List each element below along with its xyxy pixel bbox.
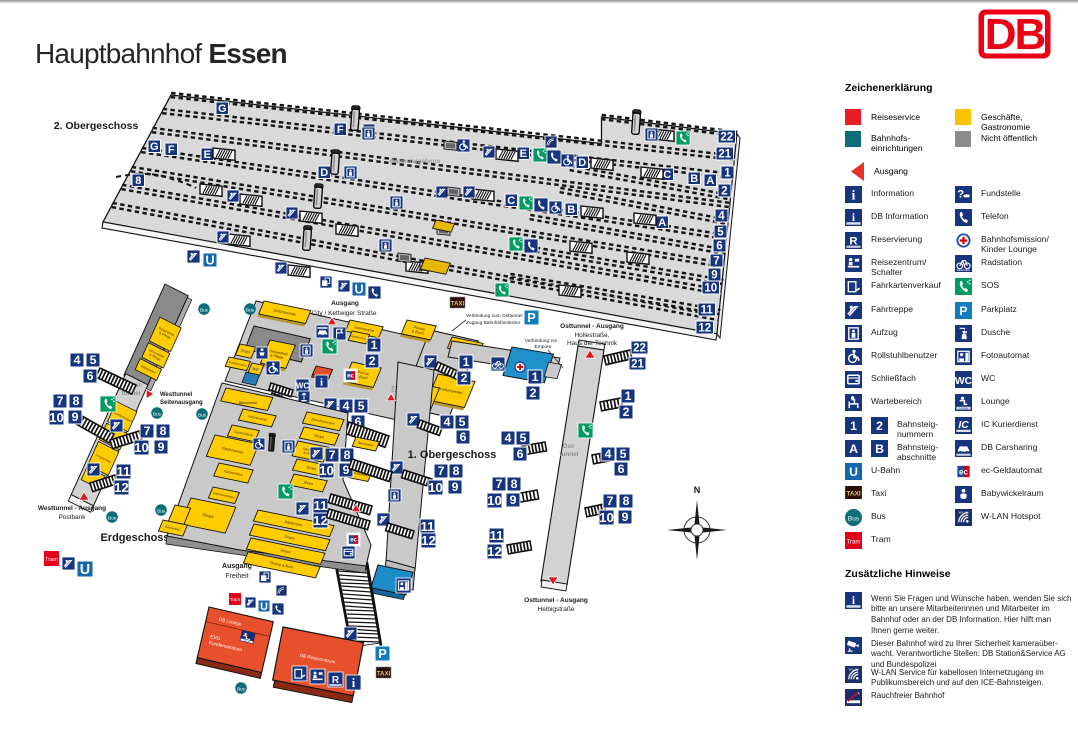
svg-text:8: 8 bbox=[453, 464, 460, 478]
svg-text:2: 2 bbox=[369, 354, 376, 368]
svg-text:7: 7 bbox=[607, 494, 614, 508]
svg-text:Hollestraße,: Hollestraße, bbox=[574, 332, 609, 339]
svg-text:1. Obergeschoss: 1. Obergeschoss bbox=[408, 449, 497, 461]
svg-text:9: 9 bbox=[343, 463, 350, 477]
svg-text:Postbank: Postbank bbox=[58, 514, 86, 521]
svg-text:C: C bbox=[507, 195, 515, 207]
svg-text:7: 7 bbox=[438, 464, 445, 478]
svg-text:1: 1 bbox=[371, 338, 378, 352]
svg-text:2: 2 bbox=[623, 405, 630, 419]
svg-text:5: 5 bbox=[717, 226, 724, 238]
svg-text:C: C bbox=[663, 169, 671, 181]
svg-text:B: B bbox=[690, 173, 698, 185]
svg-text:9: 9 bbox=[452, 480, 459, 494]
svg-text:Radstation: Radstation bbox=[492, 368, 504, 371]
svg-text:F: F bbox=[168, 144, 175, 156]
svg-text:Osttunnel - Ausgang: Osttunnel - Ausgang bbox=[524, 597, 588, 604]
svg-text:12: 12 bbox=[421, 533, 436, 548]
svg-text:Bus: Bus bbox=[157, 509, 166, 514]
svg-text:7: 7 bbox=[496, 477, 503, 491]
svg-text:6: 6 bbox=[517, 447, 524, 461]
svg-text:i: i bbox=[320, 376, 323, 388]
svg-text:U: U bbox=[80, 562, 90, 578]
svg-text:Verbindung zum Osttunnel: Verbindung zum Osttunnel bbox=[466, 313, 523, 319]
svg-text:6: 6 bbox=[460, 430, 467, 444]
svg-text:G: G bbox=[218, 103, 227, 115]
svg-text:5: 5 bbox=[620, 447, 627, 461]
svg-text:9: 9 bbox=[622, 510, 629, 524]
svg-text:12: 12 bbox=[487, 544, 502, 559]
svg-text:10: 10 bbox=[599, 510, 614, 525]
svg-text:Osttunnel - Ausgang: Osttunnel - Ausgang bbox=[560, 323, 624, 330]
svg-text:5: 5 bbox=[459, 415, 466, 429]
svg-text:11: 11 bbox=[421, 519, 435, 534]
svg-text:Bahnsteigebene: Bahnsteigebene bbox=[390, 158, 441, 165]
svg-text:Tram: Tram bbox=[45, 557, 58, 563]
svg-text:4: 4 bbox=[444, 415, 451, 429]
svg-text:7: 7 bbox=[329, 448, 336, 462]
svg-text:7: 7 bbox=[57, 394, 64, 408]
svg-text:21: 21 bbox=[718, 148, 731, 160]
svg-text:Seitenausgang: Seitenausgang bbox=[160, 400, 203, 406]
svg-text:Bus: Bus bbox=[237, 687, 246, 692]
svg-text:2. Obergeschoss: 2. Obergeschoss bbox=[54, 120, 139, 132]
svg-text:7: 7 bbox=[144, 424, 151, 438]
svg-text:P: P bbox=[378, 646, 387, 661]
svg-text:8: 8 bbox=[135, 175, 141, 187]
svg-text:Tram: Tram bbox=[230, 597, 241, 602]
svg-text:i: i bbox=[352, 676, 356, 690]
svg-text:Empore: Empore bbox=[535, 344, 552, 350]
svg-text:ec: ec bbox=[347, 373, 354, 380]
svg-text:Bus: Bus bbox=[246, 308, 255, 313]
svg-text:1: 1 bbox=[532, 370, 539, 384]
svg-text:Bus: Bus bbox=[108, 516, 117, 521]
svg-text:12: 12 bbox=[313, 513, 328, 528]
svg-text:10: 10 bbox=[49, 410, 64, 425]
svg-text:9: 9 bbox=[510, 493, 517, 507]
svg-text:11: 11 bbox=[490, 528, 504, 543]
svg-text:10: 10 bbox=[487, 493, 502, 508]
svg-text:8: 8 bbox=[344, 448, 351, 462]
svg-text:8: 8 bbox=[511, 477, 518, 491]
svg-text:8: 8 bbox=[160, 424, 167, 438]
svg-text:Freiheit: Freiheit bbox=[225, 573, 248, 580]
svg-text:P: P bbox=[527, 310, 536, 325]
svg-text:Westtunnel: Westtunnel bbox=[160, 392, 193, 398]
svg-text:Bus: Bus bbox=[153, 412, 162, 417]
svg-text:5: 5 bbox=[520, 431, 527, 445]
svg-text:E: E bbox=[520, 148, 527, 160]
svg-text:D: D bbox=[320, 167, 328, 179]
svg-text:B: B bbox=[567, 204, 575, 216]
svg-text:11: 11 bbox=[117, 464, 131, 479]
svg-text:4: 4 bbox=[343, 399, 350, 413]
svg-text:N: N bbox=[694, 485, 701, 495]
svg-text:1: 1 bbox=[625, 389, 632, 403]
svg-text:E: E bbox=[204, 149, 211, 161]
svg-text:Helbigstraße: Helbigstraße bbox=[538, 606, 575, 613]
svg-text:U: U bbox=[205, 253, 214, 267]
svg-text:TAXI: TAXI bbox=[451, 301, 465, 307]
svg-text:WC: WC bbox=[296, 382, 309, 391]
svg-text:1: 1 bbox=[463, 355, 470, 369]
svg-text:ec: ec bbox=[350, 537, 357, 544]
svg-text:10: 10 bbox=[319, 463, 334, 478]
svg-text:21: 21 bbox=[631, 358, 644, 370]
svg-text:Westtunnel - Ausgang: Westtunnel - Ausgang bbox=[38, 505, 106, 512]
svg-text:9: 9 bbox=[158, 440, 165, 454]
svg-text:D: D bbox=[578, 157, 586, 169]
svg-text:22: 22 bbox=[720, 131, 733, 143]
svg-text:4: 4 bbox=[605, 447, 612, 461]
svg-text:8: 8 bbox=[623, 494, 630, 508]
svg-text:5: 5 bbox=[90, 353, 97, 367]
svg-text:tunnel: tunnel bbox=[560, 451, 579, 458]
svg-text:A: A bbox=[706, 175, 714, 187]
svg-text:TAXI: TAXI bbox=[377, 671, 391, 677]
svg-text:9: 9 bbox=[711, 269, 717, 281]
svg-text:Ost-: Ost- bbox=[563, 443, 576, 450]
svg-text:2: 2 bbox=[461, 371, 468, 385]
svg-text:4: 4 bbox=[74, 353, 81, 367]
svg-text:4: 4 bbox=[718, 210, 725, 222]
svg-text:G: G bbox=[150, 141, 159, 153]
svg-text:2: 2 bbox=[530, 386, 537, 400]
svg-text:6: 6 bbox=[618, 462, 625, 476]
svg-text:12: 12 bbox=[698, 322, 711, 334]
svg-text:10: 10 bbox=[704, 282, 717, 294]
svg-text:5: 5 bbox=[358, 399, 365, 413]
svg-text:Ausgang: Ausgang bbox=[331, 300, 359, 307]
svg-text:11: 11 bbox=[701, 304, 714, 316]
svg-text:U: U bbox=[354, 282, 363, 296]
svg-text:2: 2 bbox=[721, 185, 727, 197]
svg-text:12: 12 bbox=[114, 480, 129, 495]
svg-text:9: 9 bbox=[72, 410, 79, 424]
svg-text:11: 11 bbox=[314, 498, 328, 513]
svg-text:4: 4 bbox=[505, 431, 512, 445]
svg-text:6: 6 bbox=[716, 240, 722, 252]
svg-text:City / Kettwiger Straße: City / Kettwiger Straße bbox=[311, 310, 376, 317]
svg-text:F: F bbox=[337, 124, 344, 136]
svg-text:10: 10 bbox=[134, 440, 149, 455]
svg-text:10: 10 bbox=[428, 480, 443, 495]
svg-text:Zugang Bahnhofsmission: Zugang Bahnhofsmission bbox=[466, 320, 520, 326]
svg-text:Bäckereien: Bäckereien bbox=[239, 401, 257, 405]
svg-text:Ausgang: Ausgang bbox=[222, 563, 252, 570]
svg-text:6: 6 bbox=[87, 369, 94, 383]
svg-text:Bus: Bus bbox=[200, 308, 209, 313]
svg-text:8: 8 bbox=[73, 394, 80, 408]
svg-text:Haus der Technik: Haus der Technik bbox=[567, 340, 618, 347]
svg-text:7: 7 bbox=[713, 255, 719, 267]
svg-text:22: 22 bbox=[633, 342, 646, 354]
svg-text:Erdgeschoss: Erdgeschoss bbox=[100, 532, 169, 544]
svg-text:A: A bbox=[658, 217, 666, 229]
svg-text:Verbindung zur: Verbindung zur bbox=[525, 338, 558, 344]
svg-text:U: U bbox=[260, 601, 268, 613]
svg-text:Bus: Bus bbox=[198, 413, 207, 418]
svg-text:1: 1 bbox=[724, 167, 731, 179]
